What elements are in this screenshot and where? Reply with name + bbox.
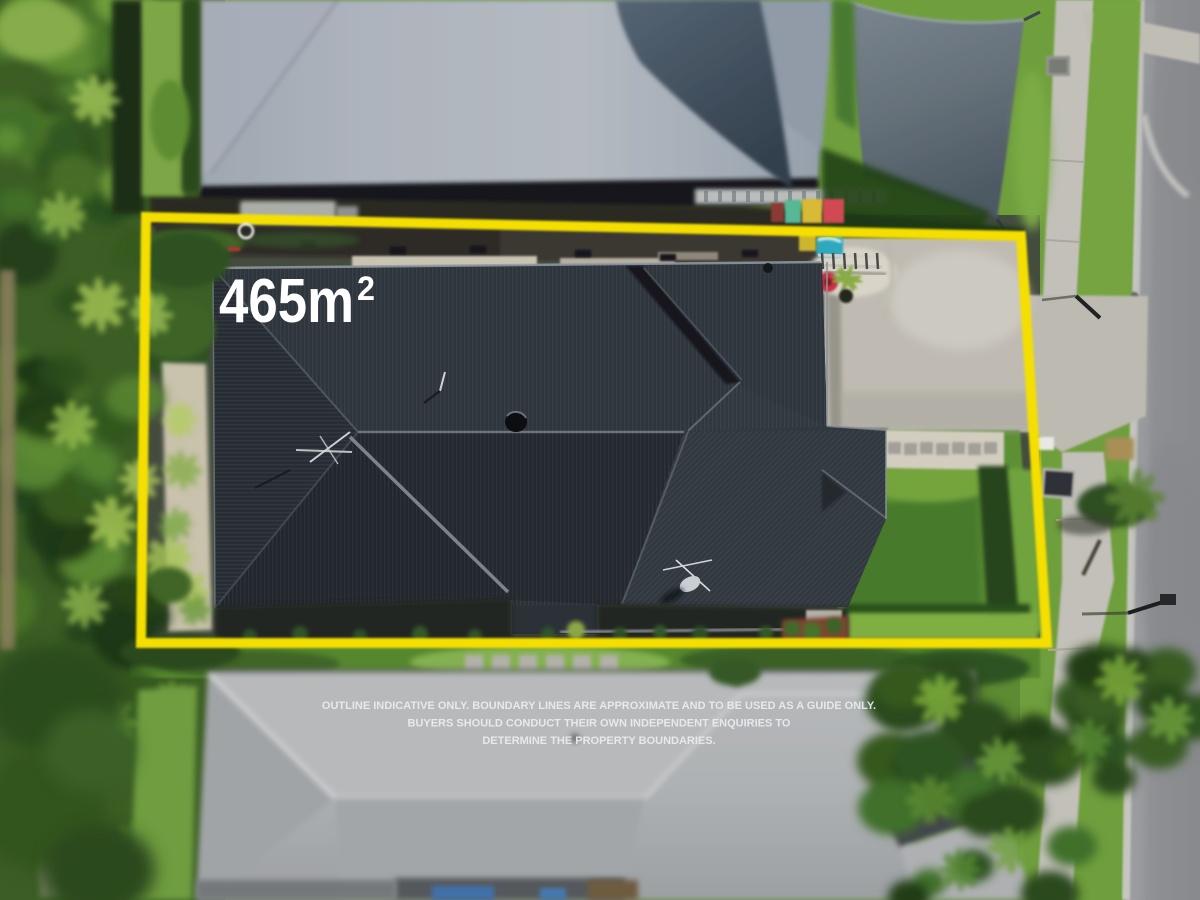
svg-text:BUYERS SHOULD CONDUCT THEIR OW: BUYERS SHOULD CONDUCT THEIR OWN INDEPEND… bbox=[408, 718, 791, 730]
svg-text:2: 2 bbox=[357, 270, 375, 308]
svg-text:465m: 465m bbox=[219, 267, 354, 336]
svg-text:DETERMINE THE PROPERTY BOUNDAR: DETERMINE THE PROPERTY BOUNDARIES. bbox=[482, 735, 715, 747]
svg-text:OUTLINE INDICATIVE ONLY. BOUND: OUTLINE INDICATIVE ONLY. BOUNDARY LINES … bbox=[322, 700, 876, 712]
